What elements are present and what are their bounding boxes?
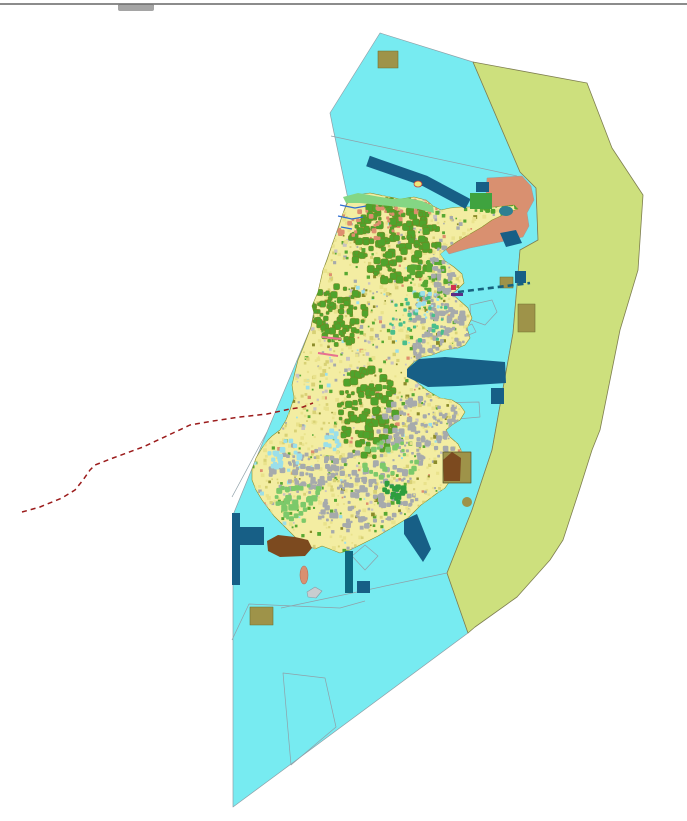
platform-south [357,581,370,593]
map-canvas[interactable] [0,0,687,821]
red-flag-marker [451,285,456,290]
harbor-basin-east [407,357,506,387]
harbor-small-east [491,388,504,404]
jetty-west-horizontal [240,527,264,545]
khaki-area-north [378,51,398,68]
khaki-area-south [250,607,273,625]
pier-south [345,551,353,593]
islet-salmon [300,566,308,584]
jetty-west-vertical [232,513,240,585]
anchorage-square [515,271,526,283]
khaki-area-east-large [518,304,535,332]
islet-yellow [414,181,422,187]
lagoon-ne [499,206,513,216]
purple-quay-marker [451,293,463,296]
green-plot-ne [470,193,492,209]
dock-rect [476,182,489,192]
khaki-blob-small [462,497,472,507]
